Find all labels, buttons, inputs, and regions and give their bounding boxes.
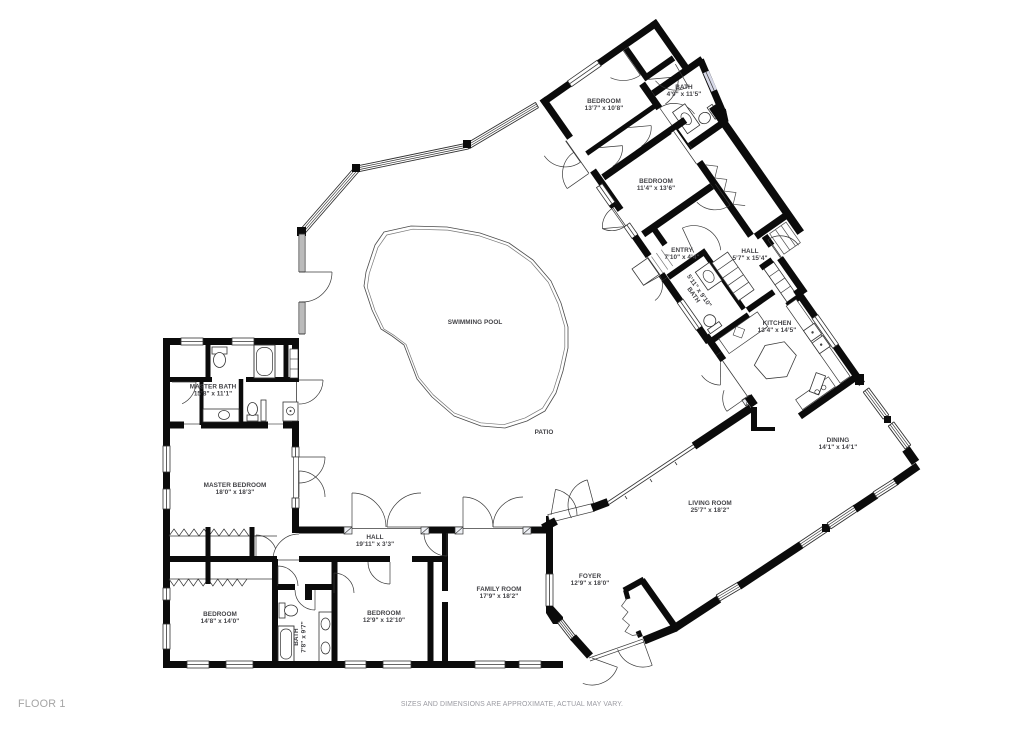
svg-text:FOYER: FOYER [579, 573, 602, 580]
svg-text:14’1" x 14’1": 14’1" x 14’1" [819, 444, 858, 451]
svg-text:BEDROOM: BEDROOM [639, 178, 673, 185]
svg-text:7’10" x 4’4": 7’10" x 4’4" [664, 254, 699, 261]
svg-text:5’7" x 15’4": 5’7" x 15’4" [732, 255, 767, 262]
svg-text:11’4" x 13’6": 11’4" x 13’6" [637, 185, 675, 192]
svg-text:DINING: DINING [827, 437, 850, 444]
svg-text:13’7" x 10’8": 13’7" x 10’8" [585, 105, 624, 112]
svg-text:15’8" x 11’1": 15’8" x 11’1" [194, 391, 232, 398]
svg-text:HALL: HALL [366, 534, 383, 541]
svg-text:25’7" x 18’2": 25’7" x 18’2" [691, 507, 730, 514]
svg-text:SIZES AND DIMENSIONS ARE APPRO: SIZES AND DIMENSIONS ARE APPROXIMATE, AC… [401, 701, 623, 708]
svg-text:12’9" x 12’10": 12’9" x 12’10" [363, 617, 405, 624]
svg-text:FAMILY ROOM: FAMILY ROOM [477, 586, 522, 593]
svg-text:ENTRY: ENTRY [671, 247, 693, 254]
svg-text:14’8" x 14’0": 14’8" x 14’0" [201, 618, 240, 625]
svg-text:4’9" x 11’5": 4’9" x 11’5" [667, 91, 702, 98]
svg-text:BATH: BATH [675, 84, 693, 91]
svg-text:PATIO: PATIO [535, 429, 554, 436]
svg-text:17’9" x 18’2": 17’9" x 18’2" [480, 593, 519, 600]
svg-text:BEDROOM: BEDROOM [367, 610, 401, 617]
svg-text:13’4" x 14’5": 13’4" x 14’5" [758, 327, 797, 334]
svg-text:BEDROOM: BEDROOM [587, 98, 621, 105]
svg-text:MASTER BEDROOM: MASTER BEDROOM [204, 482, 267, 489]
svg-text:12’9" x 18’0": 12’9" x 18’0" [571, 580, 610, 587]
svg-text:BATH: BATH [293, 628, 300, 646]
svg-text:MASTER BATH: MASTER BATH [190, 384, 237, 391]
svg-text:LIVING ROOM: LIVING ROOM [688, 500, 732, 507]
svg-text:FLOOR 1: FLOOR 1 [18, 698, 66, 710]
svg-text:HALL: HALL [741, 248, 758, 255]
svg-text:19’11" x 3’3": 19’11" x 3’3" [356, 541, 394, 548]
svg-text:BEDROOM: BEDROOM [203, 611, 237, 618]
svg-text:SWIMMING POOL: SWIMMING POOL [448, 319, 503, 326]
svg-text:KITCHEN: KITCHEN [763, 320, 792, 327]
svg-text:18’0" x 18’3": 18’0" x 18’3" [216, 489, 255, 496]
svg-text:7’8" x 9’7": 7’8" x 9’7" [301, 621, 308, 652]
